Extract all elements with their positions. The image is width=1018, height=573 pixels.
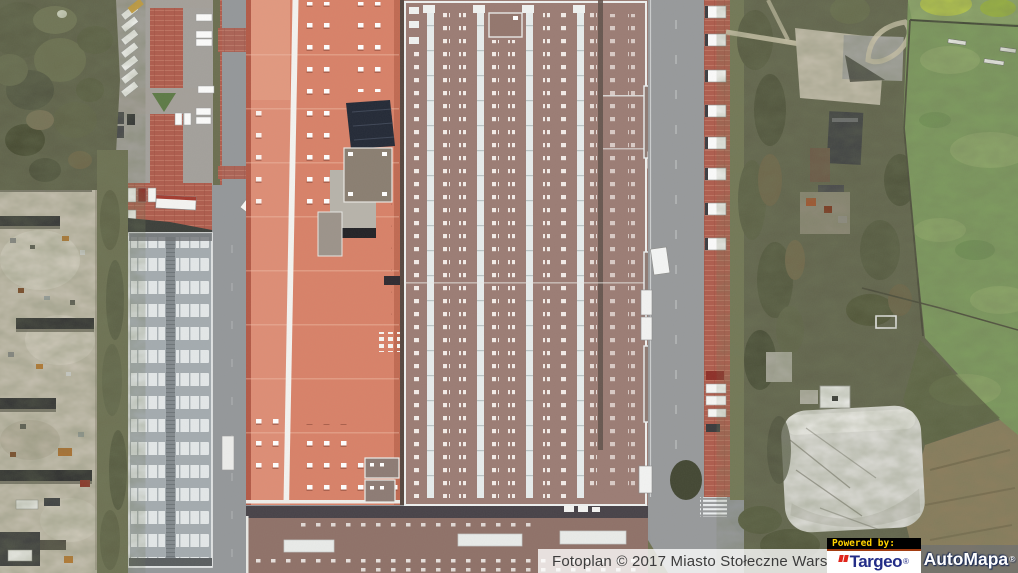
automapa-brand-text: AutoMapa [924,549,1009,570]
attribution: Fotoplan © 2017 Miasto Stołeczne Warszaw… [538,549,828,573]
powered-by-text: Powered by: [832,539,895,549]
targeo-logo[interactable]: Targeo ® [827,551,921,573]
powered-by-label: Powered by: [827,538,921,551]
automapa-logo[interactable]: AutoMapa ® [921,545,1018,573]
attribution-text: Fotoplan © 2017 Miasto Stołeczne Warszaw… [552,553,863,570]
photo-grain [0,0,1018,573]
targeo-brand-text: Targeo [850,552,902,572]
map-viewport[interactable]: Fotoplan © 2017 Miasto Stołeczne Warszaw… [0,0,1018,573]
targeo-registered-mark: ® [903,558,909,566]
aerial-imagery [0,0,1018,573]
targeo-quote-icon [839,555,848,562]
automapa-registered-mark: ® [1009,555,1015,563]
